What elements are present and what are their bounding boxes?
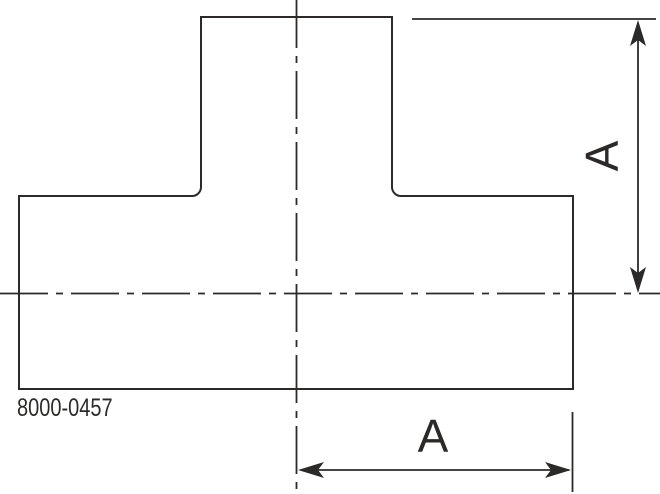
part-number: 8000-0457 <box>17 394 113 422</box>
tee-fitting-technical-drawing: A A 8000-0457 <box>0 0 660 494</box>
drawing-svg: A A 8000-0457 <box>0 0 660 494</box>
vertical-dimension-label: A <box>576 140 628 171</box>
horizontal-dimension-label: A <box>418 410 449 462</box>
